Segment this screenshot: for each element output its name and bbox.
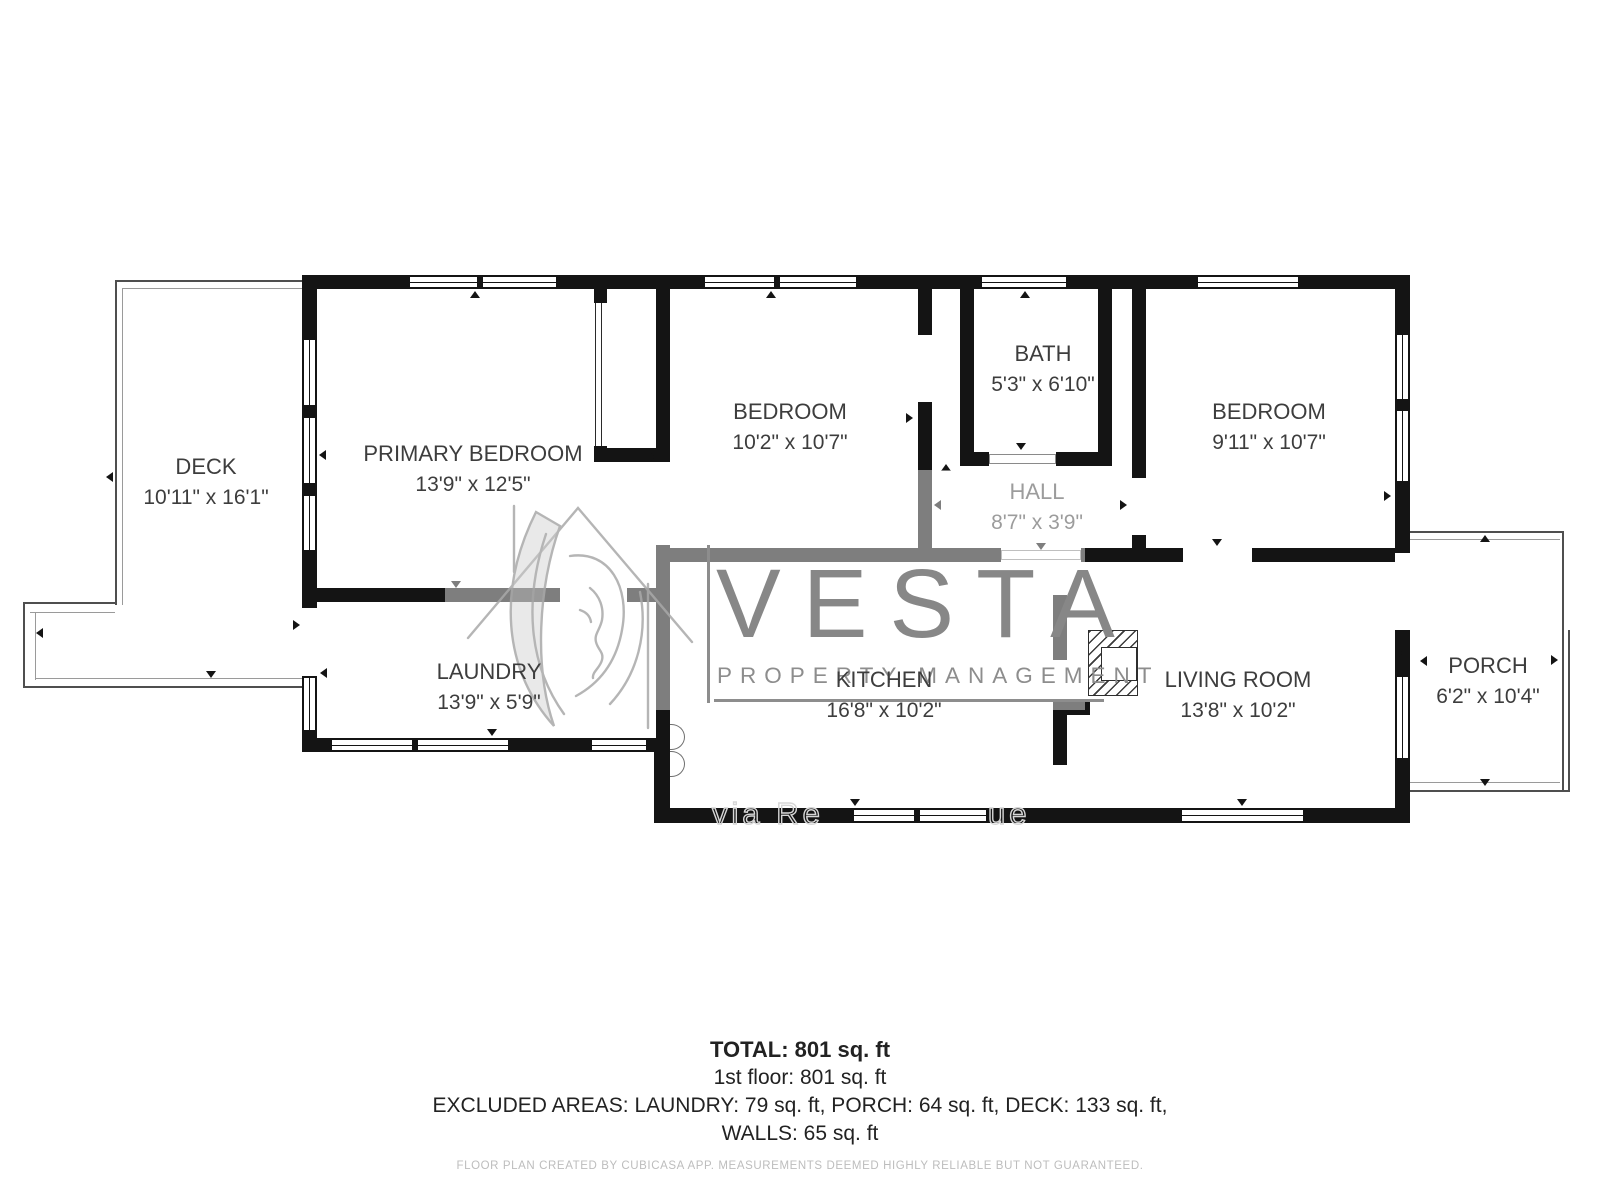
watermark-credit-suffix: ue bbox=[988, 796, 1030, 832]
window bbox=[703, 275, 858, 289]
door-swing-arc bbox=[670, 751, 685, 777]
room-label-porch: PORCH 6'2" x 10'4" bbox=[1436, 650, 1540, 712]
window bbox=[408, 275, 558, 289]
window bbox=[980, 275, 1068, 289]
room-dims: 13'8" x 10'2" bbox=[1165, 695, 1312, 726]
room-name: BATH bbox=[991, 338, 1095, 369]
wall-segment bbox=[918, 289, 932, 335]
floorplan-canvas: VESTA PROPERTY MANAGEMENT via Re ue DECK… bbox=[0, 0, 1600, 1200]
opening-threshold bbox=[989, 454, 1056, 464]
room-name: HALL bbox=[991, 476, 1083, 507]
walls-area: WALLS: 65 sq. ft bbox=[0, 1120, 1600, 1148]
wall-segment bbox=[1132, 548, 1183, 562]
first-floor-area: 1st floor: 801 sq. ft bbox=[0, 1064, 1600, 1092]
room-name: KITCHEN bbox=[826, 664, 941, 695]
room-name: BEDROOM bbox=[732, 396, 847, 427]
room-name: PORCH bbox=[1436, 650, 1540, 681]
disclaimer: FLOOR PLAN CREATED BY CUBICASA APP. MEAS… bbox=[0, 1160, 1600, 1172]
room-dims: 10'11" x 16'1" bbox=[143, 482, 268, 513]
window bbox=[1180, 808, 1305, 823]
window bbox=[852, 808, 988, 823]
room-dims: 13'9" x 12'5" bbox=[363, 469, 582, 500]
excluded-areas: EXCLUDED AREAS: LAUNDRY: 79 sq. ft, PORC… bbox=[0, 1092, 1600, 1120]
room-label-deck: DECK 10'11" x 16'1" bbox=[143, 451, 268, 513]
room-dims: 5'3" x 6'10" bbox=[991, 369, 1095, 400]
watermark-credit-prefix: via Re bbox=[712, 796, 824, 832]
wall-segment bbox=[302, 275, 317, 338]
wall-segment bbox=[1098, 289, 1112, 466]
closet-door-track bbox=[595, 303, 602, 446]
wall-segment bbox=[594, 289, 607, 303]
room-dims: 8'7" x 3'9" bbox=[991, 507, 1083, 538]
room-label-hall: HALL 8'7" x 3'9" bbox=[991, 476, 1083, 538]
wall-segment bbox=[960, 452, 989, 466]
window bbox=[1395, 675, 1410, 760]
room-dims: 16'8" x 10'2" bbox=[826, 695, 941, 726]
area-summary: TOTAL: 801 sq. ft 1st floor: 801 sq. ft … bbox=[0, 1036, 1600, 1148]
wall-segment bbox=[1252, 548, 1395, 562]
room-label-living-room: LIVING ROOM 13'8" x 10'2" bbox=[1165, 664, 1312, 726]
total-area: TOTAL: 801 sq. ft bbox=[0, 1036, 1600, 1064]
room-dims: 9'11" x 10'7" bbox=[1212, 427, 1326, 458]
room-name: BEDROOM bbox=[1212, 396, 1326, 427]
room-name: LAUNDRY bbox=[437, 656, 542, 687]
wall-segment bbox=[1056, 452, 1112, 466]
room-label-bedroom-middle: BEDROOM 10'2" x 10'7" bbox=[732, 396, 847, 458]
watermark-divider bbox=[707, 545, 710, 703]
watermark-brand: VESTA bbox=[716, 549, 1137, 659]
room-label-primary-bedroom: PRIMARY BEDROOM 13'9" x 12'5" bbox=[363, 438, 582, 500]
window bbox=[302, 338, 317, 552]
room-name: DECK bbox=[143, 451, 268, 482]
window bbox=[1196, 275, 1300, 289]
room-name: PRIMARY BEDROOM bbox=[363, 438, 582, 469]
door-gap bbox=[1395, 553, 1410, 630]
room-dims: 6'2" x 10'4" bbox=[1436, 681, 1540, 712]
wall-segment bbox=[960, 289, 974, 452]
room-dims: 10'2" x 10'7" bbox=[732, 427, 847, 458]
wall-segment bbox=[918, 452, 932, 466]
room-dims: 13'9" x 5'9" bbox=[437, 687, 542, 718]
room-label-kitchen: KITCHEN 16'8" x 10'2" bbox=[826, 664, 941, 726]
wall-segment bbox=[1132, 289, 1146, 478]
room-label-bedroom-right: BEDROOM 9'11" x 10'7" bbox=[1212, 396, 1326, 458]
room-label-bath: BATH 5'3" x 6'10" bbox=[991, 338, 1095, 400]
wall-segment bbox=[656, 289, 670, 462]
room-label-laundry: LAUNDRY 13'9" x 5'9" bbox=[437, 656, 542, 718]
door-gap bbox=[302, 608, 317, 676]
wall-segment bbox=[302, 552, 317, 608]
window bbox=[302, 676, 317, 732]
room-name: LIVING ROOM bbox=[1165, 664, 1312, 695]
